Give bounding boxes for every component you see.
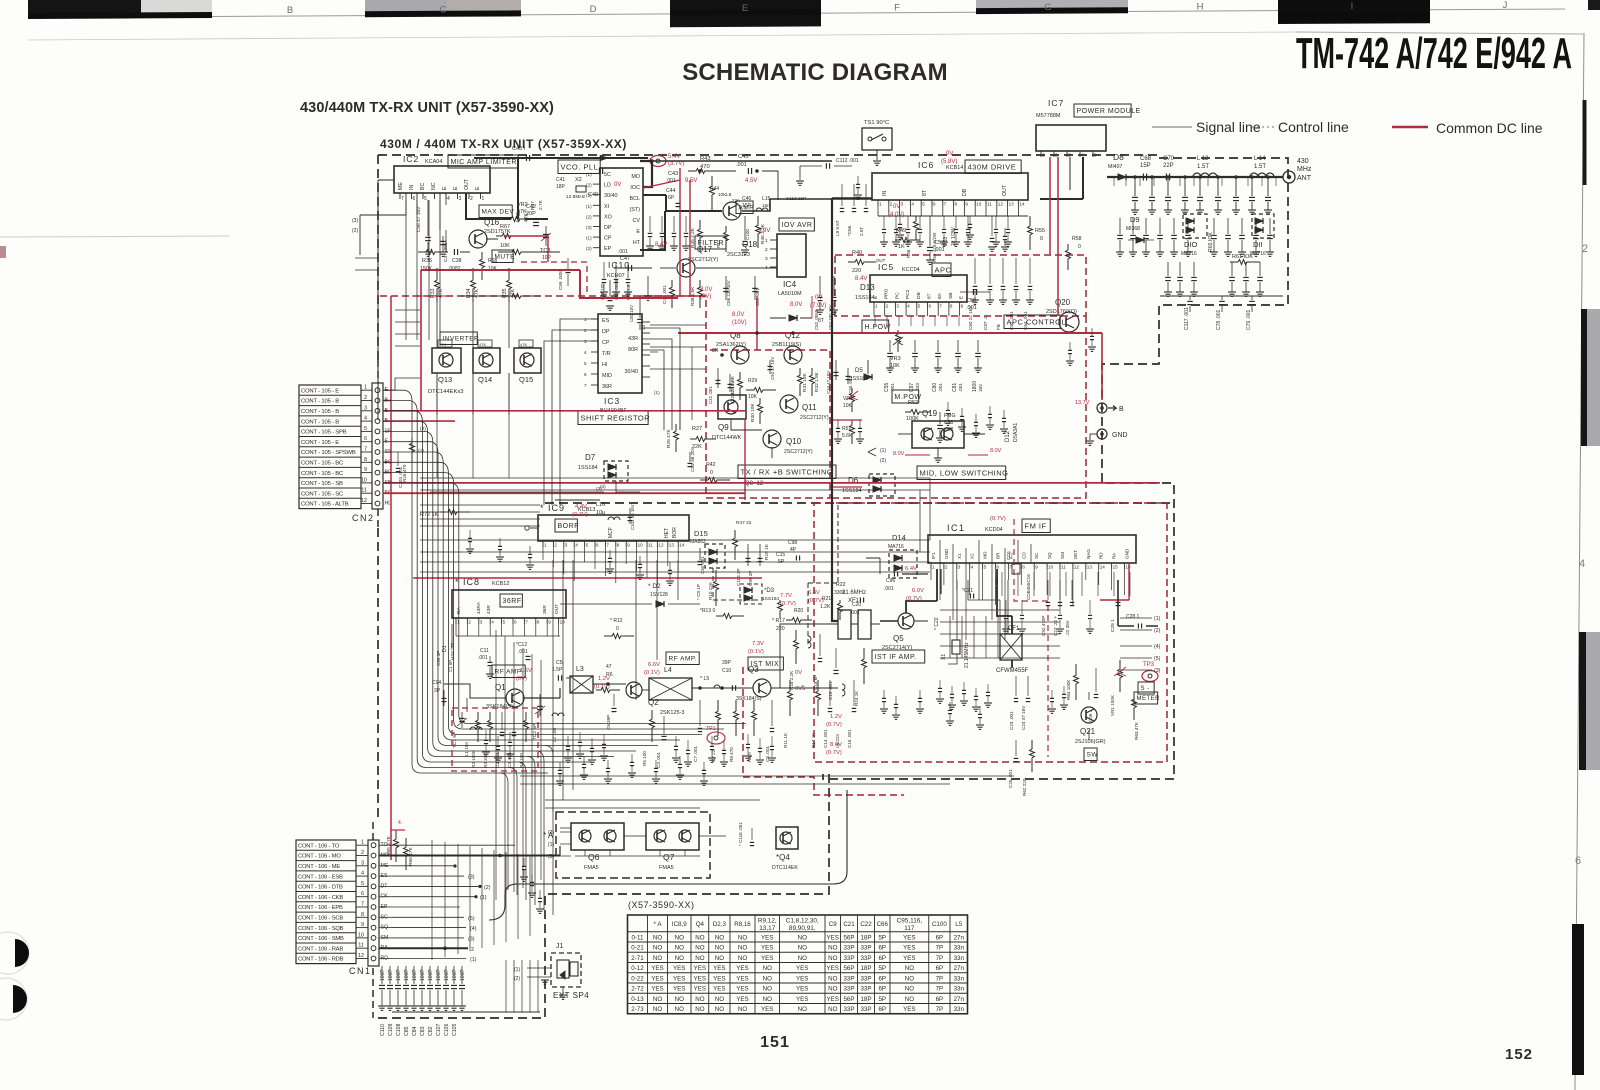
svg-text:C47: C47 [620,256,630,262]
svg-text:F: F [894,3,900,14]
svg-text:6: 6 [361,891,364,897]
svg-text:(0.1V): (0.1V) [644,670,660,676]
svg-text:.22 35V: .22 35V [1065,619,1070,636]
svg-text:CP: CP [602,340,610,346]
svg-text:33P: 33P [860,945,871,952]
svg-text:EXT SP4: EXT SP4 [553,991,589,1000]
svg-text:(3): (3) [468,936,475,942]
svg-text:16V: 16V [978,383,983,392]
svg-text:3: 3 [765,256,768,262]
svg-text:C100: C100 [932,921,947,928]
svg-text:C24 47 16V: C24 47 16V [1021,705,1026,730]
svg-text:IN: IN [882,191,888,196]
svg-text:100K: 100K [906,416,919,422]
svg-text:C30 .001: C30 .001 [700,556,705,574]
svg-text:1: 1 [584,317,587,322]
svg-text:C59 .008: C59 .008 [558,271,563,290]
svg-text:L6 22n: L6 22n [835,734,840,748]
svg-text:36R: 36R [542,605,548,614]
svg-text:*C66: *C66 [847,225,852,236]
svg-text:56P: 56P [843,996,854,1003]
svg-text:80R: 80R [628,347,638,353]
svg-text:4: 4 [907,304,910,309]
svg-text:S -: S - [1141,686,1150,692]
svg-text:FMA5: FMA5 [659,865,674,871]
svg-text:D: D [590,4,597,15]
svg-text:30/40: 30/40 [604,193,618,199]
svg-text:CD1: CD1 [1006,550,1011,560]
svg-text:89,90,91,: 89,90,91, [789,925,816,932]
svg-text:C94: C94 [432,680,441,686]
svg-text:12.8MHz: 12.8MHz [566,194,586,200]
svg-text:5: 5 [503,620,506,625]
svg-text:56P: 56P [843,934,854,941]
svg-text:12: 12 [361,498,367,504]
svg-text:3: 3 [459,196,462,202]
svg-text:33n: 33n [954,986,965,993]
svg-text:HT: HT [633,240,641,246]
svg-text:18P: 18P [860,934,871,941]
svg-text:.001: .001 [944,427,954,433]
svg-text:2SC2712(Y): 2SC2712(Y) [800,415,829,421]
svg-text:2.5T: 2.5T [859,227,864,236]
svg-text:4: 4 [491,620,494,625]
svg-text:C22: C22 [860,921,872,928]
svg-text:CONT - 105 - B: CONT - 105 - B [301,419,339,425]
svg-text:SM: SM [1060,552,1065,559]
svg-text:6: 6 [929,304,932,309]
svg-text:TC1 6P: TC1 6P [452,732,458,748]
svg-text:10: 10 [560,620,566,625]
svg-text:E: E [636,229,640,235]
svg-text:33P: 33P [843,945,854,952]
svg-text:2.7K: 2.7K [538,199,544,210]
svg-text:* A: * A [654,921,663,928]
svg-text:YES: YES [651,975,663,982]
svg-text:0: 0 [1040,236,1043,242]
svg-text:DP: DP [604,225,612,231]
svg-text:6P: 6P [878,945,886,952]
svg-text:11: 11 [358,943,364,949]
svg-text:7P: 7P [936,1006,944,1013]
svg-text:YES: YES [694,975,706,982]
svg-text:7.7V: 7.7V [780,593,792,599]
svg-text:36R: 36R [602,384,612,390]
svg-text:18P: 18P [860,996,871,1003]
svg-text:MI407: MI407 [1108,164,1123,170]
svg-text:C88 220 10V: C88 220 10V [726,280,731,306]
svg-text:.001: .001 [618,249,628,255]
svg-text:(1): (1) [470,957,477,963]
svg-text:15P: 15P [742,203,752,209]
svg-text:8: 8 [617,543,620,548]
svg-text:D13: D13 [860,283,875,292]
svg-text:ANT: ANT [1297,175,1312,182]
svg-text:Q10: Q10 [786,437,802,446]
svg-text:YES: YES [673,975,685,982]
svg-text:NO: NO [695,1006,704,1013]
svg-text:C70: C70 [1163,156,1175,162]
svg-text:100P: 100P [380,969,386,981]
svg-text:2-71: 2-71 [631,955,644,962]
svg-text:L 12: L 12 [1197,156,1209,162]
svg-text:R65 4.7K: R65 4.7K [386,835,392,856]
svg-text:100P: 100P [452,969,458,981]
svg-text:4: 4 [364,416,367,422]
svg-text:12: 12 [998,202,1004,207]
svg-text:C35 .001: C35 .001 [848,376,853,394]
svg-text:NO: NO [695,955,704,962]
svg-text:(3): (3) [586,225,592,230]
svg-text:2: 2 [471,947,474,953]
svg-text:2SA1362(Y): 2SA1362(Y) [716,342,746,348]
svg-text:CV: CV [633,218,641,224]
svg-text:.001: .001 [938,383,943,392]
svg-text:IOC: IOC [630,185,640,191]
svg-text:C85: C85 [404,1026,410,1036]
svg-text:IST IF AMP.: IST IF AMP. [875,654,917,661]
svg-text:NO: NO [828,945,837,952]
svg-text:X1: X1 [957,553,962,559]
svg-text:4: 4 [1579,558,1585,570]
svg-text:VR1 100K: VR1 100K [1110,694,1115,716]
svg-text:47K: 47K [439,342,446,347]
svg-text:11: 11 [1061,565,1066,570]
svg-text:1SS184: 1SS184 [762,596,779,602]
svg-text:R51: R51 [842,426,851,432]
svg-text:E: E [453,186,459,190]
svg-text:YES: YES [713,975,725,982]
svg-text:14: 14 [679,543,685,548]
svg-text:TP1: TP1 [706,726,716,732]
svg-text:YES: YES [827,965,839,972]
svg-text:11: 11 [361,488,367,494]
svg-text:C92 470P: C92 470P [1041,616,1046,636]
svg-text:D5: D5 [855,368,863,374]
svg-text:NO: NO [763,996,772,1003]
svg-text:(0.1V): (0.1V) [748,649,764,655]
svg-text:Q8~12: Q8~12 [745,481,764,487]
svg-text:10K: 10K [748,394,758,400]
svg-text:VR2: VR2 [516,212,522,222]
svg-text:MO: MO [631,174,640,180]
svg-text:2: 2 [361,850,364,856]
svg-text:NAG: NAG [1086,549,1091,559]
svg-text:YES: YES [903,945,915,952]
svg-text:(5): (5) [468,916,475,922]
svg-text:0V: 0V [946,151,953,157]
svg-text:MID: MID [602,373,612,379]
svg-text:C110: C110 [380,1024,386,1036]
svg-text:C78 .001: C78 .001 [1216,309,1222,330]
svg-text:C64 .001: C64 .001 [1023,311,1028,330]
svg-text:.001: .001 [478,655,488,661]
svg-text:6P: 6P [668,195,675,201]
svg-text:* D2: * D2 [648,583,661,590]
svg-text:YES: YES [736,986,748,993]
svg-text:C49 .001: C49 .001 [662,285,667,304]
svg-text:1.5T: 1.5T [1254,164,1266,170]
svg-text:(0.7V): (0.7V) [826,750,842,756]
svg-text:CONT - 106 - TO: CONT - 106 - TO [298,843,340,849]
svg-text:1SS184: 1SS184 [578,465,598,471]
svg-text:G: G [1044,2,1051,13]
svg-text:MO: MO [983,551,988,559]
svg-text:CONT - 105 - SPB: CONT - 105 - SPB [301,430,347,436]
svg-text:33P: 33P [843,975,854,982]
svg-text:1: 1 [932,565,935,570]
svg-text:TP3: TP3 [1143,662,1155,668]
svg-text:33n: 33n [954,955,965,962]
svg-text:D7: D7 [585,453,596,462]
svg-text:2-73: 2-73 [631,1006,644,1013]
svg-text:6P: 6P [936,965,944,972]
svg-text:C43: C43 [668,171,678,177]
svg-text:NO: NO [653,955,662,962]
svg-text:C46: C46 [742,196,751,202]
svg-text:R56: R56 [906,249,911,258]
svg-text:5: 5 [584,361,587,366]
svg-text:YES: YES [694,986,706,993]
svg-text:(1): (1) [514,967,520,973]
svg-text:1.5P: 1.5P [552,667,563,673]
svg-text:3: 3 [584,339,587,344]
svg-text:12: 12 [1074,565,1080,570]
svg-text:39P: 39P [722,660,732,666]
svg-text:RF AMP.: RF AMP. [495,669,524,676]
svg-text:NO: NO [695,934,704,941]
svg-text:CONT - 106 - SCB: CONT - 106 - SCB [298,916,343,922]
svg-text:10K: 10K [843,403,853,409]
svg-text:L16: L16 [596,502,605,508]
svg-text:SB: SB [948,293,954,299]
svg-text:(2): (2) [586,183,592,188]
svg-text:33: 33 [641,325,646,330]
svg-text:C28 1: C28 1 [1126,614,1140,620]
svg-text:33P: 33P [860,955,871,962]
svg-text:5: 5 [1094,153,1097,159]
svg-text:YES: YES [673,986,685,993]
svg-text:R45 2.2K: R45 2.2K [690,227,696,248]
svg-text:PC2: PC2 [905,289,911,299]
svg-text:3: 3 [565,543,568,548]
svg-text:7: 7 [939,304,942,309]
svg-text:C82: C82 [428,1026,434,1036]
svg-text:NO: NO [675,934,684,941]
svg-text:2: 2 [468,620,471,625]
svg-text:L8: L8 [726,192,732,198]
svg-text:C40: C40 [588,192,598,198]
svg-text:R9,12,: R9,12, [758,918,777,925]
svg-text:10K: 10K [890,363,900,369]
svg-text:CONT - 106 - RAB: CONT - 106 - RAB [298,946,343,952]
svg-text:9: 9 [627,543,630,548]
svg-text:7: 7 [606,543,609,548]
svg-text:VCO. PLL: VCO. PLL [561,163,599,172]
svg-text:C41: C41 [556,177,565,183]
svg-text:YES: YES [761,955,773,962]
svg-text:FM IF: FM IF [1025,522,1047,531]
svg-text:L 14: L 14 [1254,156,1266,162]
svg-text:T/R: T/R [602,351,611,357]
svg-text:X1: X1 [941,654,947,660]
svg-text:R66 47K: R66 47K [408,847,414,866]
svg-text:100P: 100P [404,969,410,981]
svg-text:NO: NO [715,996,724,1003]
svg-text:3SK184(S): 3SK184(S) [736,696,762,702]
svg-text:C33 .68 20V: C33 .68 20V [690,448,695,472]
svg-text:(0.7V): (0.7V) [826,722,842,728]
svg-text:R11 1K: R11 1K [783,732,788,748]
svg-text:R25 470: R25 470 [402,464,407,482]
svg-text:D15: D15 [694,529,708,538]
svg-text:2: 2 [470,196,473,202]
svg-text:J: J [1503,0,1508,11]
svg-text:DSA3A1: DSA3A1 [1013,423,1019,442]
svg-text:FMA5: FMA5 [584,865,599,871]
svg-text:43R: 43R [628,336,638,342]
svg-text:DTC114EK: DTC114EK [772,865,798,871]
svg-text:30/40: 30/40 [625,369,639,375]
svg-text:.033: .033 [915,383,920,392]
svg-text:NO: NO [738,945,747,952]
svg-text:E: E [475,186,481,190]
svg-text:C44: C44 [666,188,676,194]
svg-text:C4 .001: C4 .001 [656,751,661,768]
svg-text:R26 47K: R26 47K [666,429,672,448]
svg-text:KCB12: KCB12 [492,581,509,587]
svg-text:33P: 33P [860,986,871,993]
svg-text:MAX DEV: MAX DEV [482,209,515,216]
svg-text:9: 9 [548,620,551,625]
svg-text:CD: CD [1021,552,1026,559]
svg-text:5: 5 [586,543,589,548]
svg-text:NO: NO [738,1006,747,1013]
svg-text:(4): (4) [1154,644,1161,650]
svg-text:OUT: OUT [464,178,470,190]
svg-text:CONT - 106 - RDB: CONT - 106 - RDB [298,957,344,963]
svg-text:CONT - 105 - BC: CONT - 105 - BC [301,461,344,467]
svg-text:5.6K: 5.6K [842,433,853,439]
svg-text:R32 1.8K: R32 1.8K [814,371,820,392]
svg-text:Q6: Q6 [588,852,600,862]
svg-text:C95,116,: C95,116, [897,918,923,925]
svg-text:C11: C11 [480,648,489,654]
svg-text:YES: YES [673,965,685,972]
svg-text:Q13: Q13 [438,375,452,384]
svg-text:C68: C68 [1140,156,1152,162]
svg-text:NO: NO [905,975,914,982]
svg-text:10: 10 [976,202,982,207]
svg-text:NO: NO [653,945,662,952]
svg-text:C1 6P: C1 6P [448,660,453,672]
svg-text:4.5V: 4.5V [745,178,757,184]
svg-text:YES: YES [761,1006,773,1013]
svg-text:L9 9.5T: L9 9.5T [835,220,840,236]
svg-text:6.4V: 6.4V [808,590,820,596]
svg-text:3SK184(S): 3SK184(S) [486,704,513,710]
svg-text:9: 9 [361,922,364,928]
svg-text:YES: YES [736,996,748,1003]
svg-text:100P: 100P [412,969,418,981]
svg-text:(5): (5) [1154,656,1161,662]
svg-text:IC6: IC6 [918,160,934,170]
svg-text:ES: ES [602,318,610,324]
svg-text:22n: 22n [732,198,740,203]
svg-text:330K: 330K [834,590,846,596]
svg-text:XI: XI [604,204,609,210]
svg-text:6P: 6P [936,996,944,1003]
svg-text:Q5: Q5 [893,634,904,643]
svg-text:R63 47K: R63 47K [1134,721,1139,740]
svg-text:7: 7 [525,620,528,625]
svg-text:APC: APC [935,266,952,275]
svg-text:1.2K: 1.2K [820,604,831,610]
svg-text:YES: YES [761,945,773,952]
svg-text:8.0V: 8.0V [732,312,744,318]
svg-text:5P: 5P [778,559,785,565]
svg-text:6.4V: 6.4V [905,566,917,572]
svg-text:0-12: 0-12 [631,965,644,972]
svg-text:Q7: Q7 [663,852,675,862]
svg-text:2SC2712(Y): 2SC2712(Y) [784,449,813,455]
svg-text:7P: 7P [936,945,944,952]
svg-text:10: 10 [358,932,364,938]
svg-text:2: 2 [1582,243,1588,255]
svg-text:8T: 8T [818,318,824,324]
svg-text:BORF: BORF [558,523,579,530]
svg-text:C102 10 16V: C102 10 16V [630,504,635,530]
svg-text:8T: 8T [927,293,933,299]
svg-text:4: 4 [911,202,914,207]
svg-text:IC8,9: IC8,9 [672,921,687,928]
svg-text:8.4V: 8.4V [655,242,667,248]
svg-text:(7.9V): (7.9V) [810,303,826,309]
svg-text:C1,8,12,30,: C1,8,12,30, [786,918,819,925]
svg-text:7P: 7P [936,975,944,982]
svg-text:*R13 0: *R13 0 [700,608,716,614]
svg-text:18P: 18P [860,965,871,972]
svg-text:I: I [1351,1,1354,12]
svg-text:27n: 27n [954,965,965,972]
svg-text:2: 2 [945,565,948,570]
svg-text:.001: .001 [884,586,894,592]
svg-text:C16 .001: C16 .001 [847,729,852,748]
svg-text:RA: RA [1112,552,1117,559]
svg-text:(1): (1) [480,895,487,901]
svg-text:5P: 5P [878,934,886,941]
svg-text:DB: DB [916,292,922,299]
svg-text:18n: 18n [762,203,770,208]
svg-text:5P: 5P [878,965,886,972]
svg-text:4.4V: 4.4V [575,504,587,510]
svg-text:(1): (1) [586,236,592,241]
svg-text:BR: BR [996,552,1001,559]
svg-text:L1 18n: L1 18n [464,742,469,756]
svg-text:C93 47 16V: C93 47 16V [770,357,775,380]
svg-text:D14: D14 [892,533,906,542]
svg-text:D1: D1 [442,645,448,652]
svg-text:2SC2712(Y): 2SC2712(Y) [688,257,718,263]
svg-text:NO: NO [695,996,704,1003]
svg-text:L3: L3 [576,666,584,673]
svg-text:8: 8 [364,457,367,463]
svg-text:POWER MODULE: POWER MODULE [1077,108,1141,115]
svg-text:1: 1 [879,202,882,207]
svg-text:YES: YES [651,986,663,993]
svg-text:DET: DET [1073,550,1078,559]
svg-text:IOV AVR: IOV AVR [782,222,813,229]
